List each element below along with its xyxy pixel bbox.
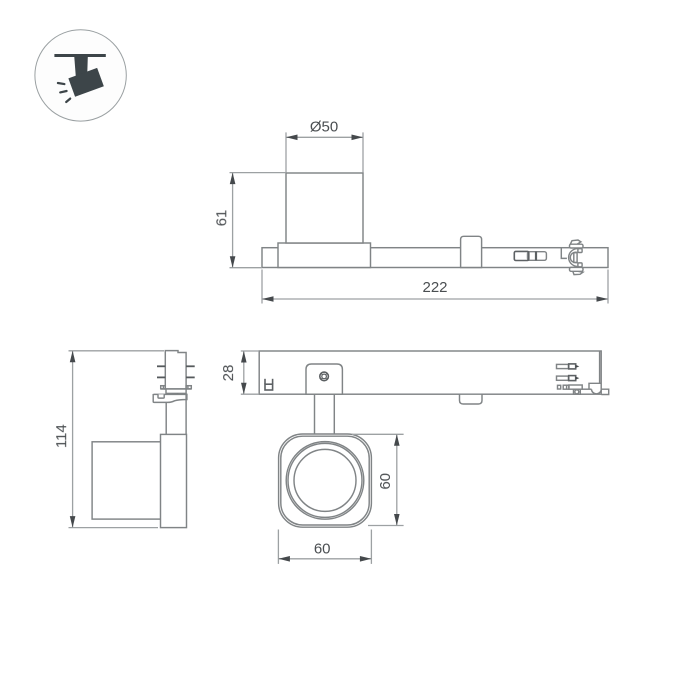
- svg-text:60: 60: [314, 541, 331, 558]
- svg-text:60: 60: [377, 473, 394, 490]
- svg-text:114: 114: [53, 424, 70, 448]
- svg-text:222: 222: [422, 279, 447, 296]
- svg-text:Ø50: Ø50: [310, 119, 338, 136]
- svg-text:61: 61: [213, 210, 230, 227]
- svg-text:28: 28: [220, 365, 237, 382]
